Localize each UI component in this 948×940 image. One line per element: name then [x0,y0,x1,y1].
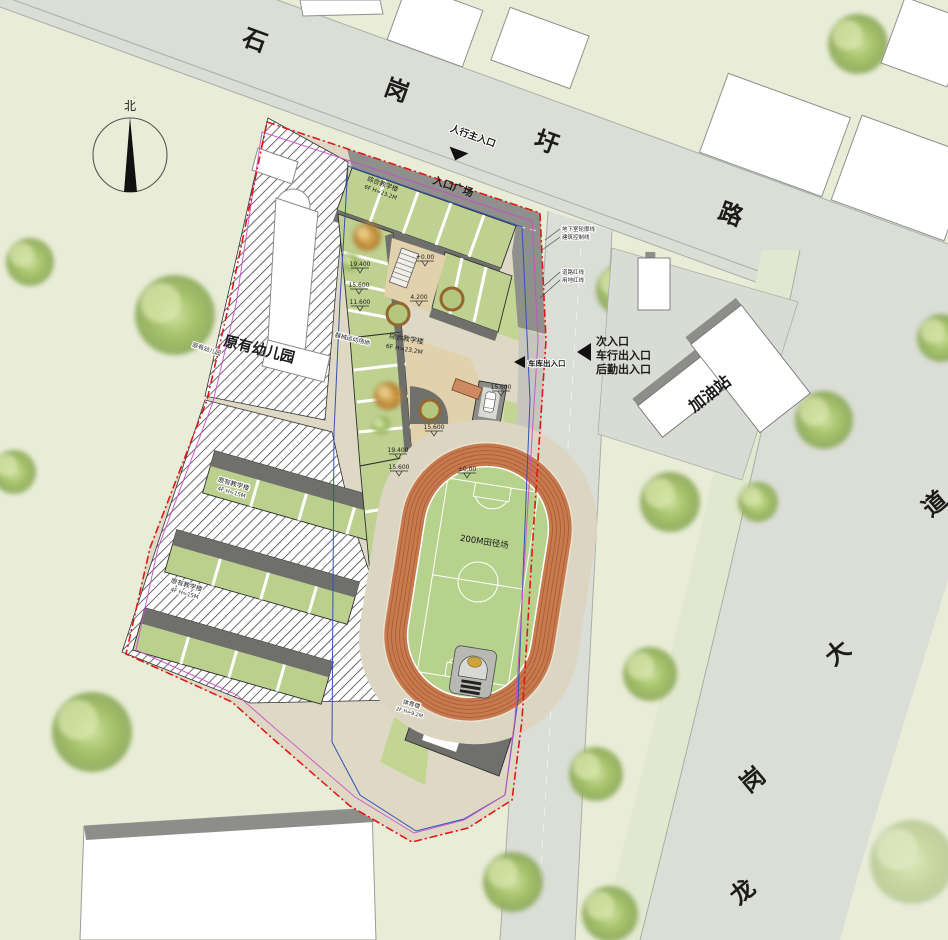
elevation: 11.600 [350,299,371,306]
planter [387,303,409,325]
elevation: 15.600 [349,282,370,289]
tree [52,692,132,772]
offsite-building-southwest [80,808,376,940]
tree [569,747,623,801]
tree [374,382,402,410]
elevation: ±0.00 [458,466,477,473]
planter [420,400,440,420]
offsite-building [300,0,383,16]
garage-entrance-label: 车库出入口 [528,358,566,368]
site-plan-canvas: 200M田径场 加油站 北 石 岗 圩 [0,0,948,940]
annotation-road-redline: 道路红线 [562,268,585,276]
tree [738,482,778,522]
tree [640,472,700,532]
tree [795,391,853,449]
elevation: 15.600 [389,464,410,471]
elevation: +0.00 [416,254,435,261]
secondary-entrance-line: 车行出入口 [596,348,651,362]
tree [6,238,54,286]
elevation: 19.400 [350,261,371,268]
elevation: 15.600 [491,384,512,391]
rostrum [449,645,498,699]
elevation: 19.400 [388,447,409,454]
tree [483,852,543,912]
annotation-control-line: 建筑控制线 [562,233,590,241]
tree [353,223,381,251]
tree [582,886,638,940]
gas-station-kiosk [638,252,670,310]
tree [828,14,888,74]
tree [372,416,390,434]
secondary-entrance-line: 后勤出入口 [596,362,651,376]
tree [623,647,677,701]
north-label: 北 [124,99,136,113]
tree [135,275,215,355]
annotation-site-redline: 用地红线 [562,276,585,284]
secondary-entrance-line: 次入口 [596,334,629,348]
planter [441,288,463,310]
site-plan-drawing: 200M田径场 加油站 北 石 岗 圩 [0,0,948,940]
elevation: 4.200 [410,294,427,301]
elevation: 15.600 [424,424,445,431]
annotation-basement-outline: 地下室轮廓线 [562,225,596,233]
